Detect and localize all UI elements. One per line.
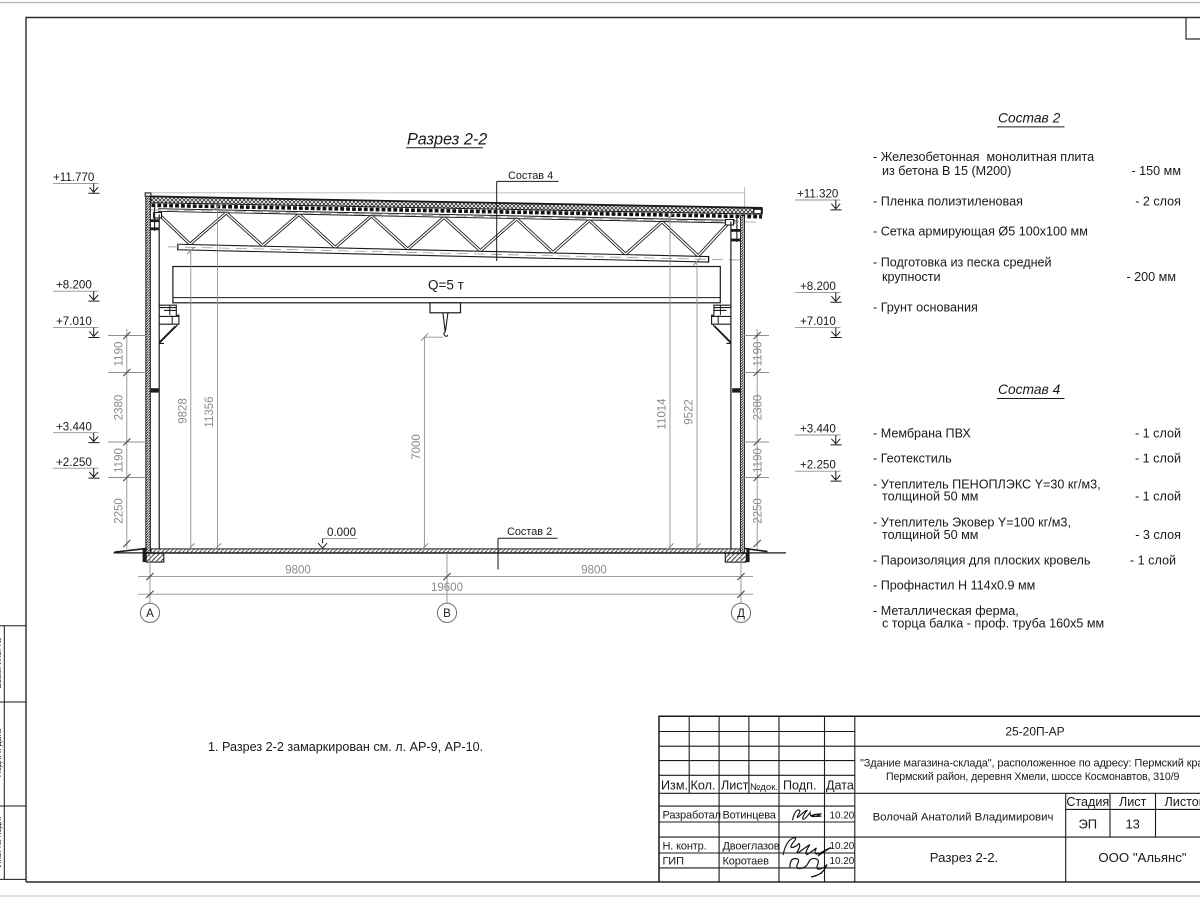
svg-text:Пермский район, деревня Хмели,: Пермский район, деревня Хмели, шоссе Кос… [886, 771, 1179, 783]
svg-text:с торца балка - проф. труба 16: с торца балка - проф. труба 160x5 мм [882, 617, 1104, 631]
svg-text:- 1 слой: - 1 слой [1135, 451, 1181, 465]
svg-text:1190: 1190 [753, 342, 765, 367]
svg-text:Стадия: Стадия [1066, 795, 1109, 809]
svg-text:Состав 4: Состав 4 [508, 170, 553, 182]
svg-text:толщиной 50 мм: толщиной 50 мм [882, 528, 978, 542]
svg-text:11014: 11014 [657, 398, 669, 430]
svg-text:Изм.: Изм. [661, 778, 688, 792]
svg-text:11356: 11356 [204, 396, 216, 427]
svg-text:- Геотекстиль: - Геотекстиль [873, 451, 952, 465]
svg-text:Волочай Анатолий Владимирович: Волочай Анатолий Владимирович [873, 812, 1054, 824]
svg-text:- 1 слой: - 1 слой [1135, 426, 1181, 440]
svg-text:13: 13 [1125, 817, 1139, 832]
svg-text:9800: 9800 [285, 565, 311, 577]
svg-text:+3.440: +3.440 [800, 423, 836, 436]
svg-text:- Грунт основания: - Грунт основания [873, 301, 978, 315]
svg-text:№док.: №док. [750, 782, 778, 793]
svg-text:10.20: 10.20 [830, 810, 855, 821]
svg-text:ООО "Альянс": ООО "Альянс" [1098, 850, 1186, 865]
svg-text:Лист: Лист [1119, 795, 1147, 809]
svg-text:+8.200: +8.200 [56, 278, 92, 291]
svg-text:9800: 9800 [581, 565, 607, 577]
svg-text:9828: 9828 [177, 398, 189, 424]
svg-text:Подп. и дата: Подп. и дата [0, 728, 3, 777]
svg-text:1. Разрез 2-2 замаркирован см.: 1. Разрез 2-2 замаркирован см. л. АР-9, … [208, 740, 483, 754]
svg-text:Вотинцева: Вотинцева [723, 810, 777, 822]
svg-text:- Железобетонная монолитная п: - Железобетонная монолитная плита [873, 150, 1094, 164]
svg-text:0.000: 0.000 [327, 526, 356, 539]
svg-text:А: А [146, 608, 154, 620]
svg-text:крупности: крупности [882, 270, 941, 284]
svg-text:- Профнастил Н 114x0.9 мм: - Профнастил Н 114x0.9 мм [873, 578, 1035, 592]
svg-text:Состав 4: Состав 4 [998, 382, 1061, 397]
svg-text:+8.200: +8.200 [800, 280, 836, 293]
svg-text:+3.440: +3.440 [56, 420, 92, 433]
svg-text:2380: 2380 [753, 395, 765, 421]
svg-text:Состав 2: Состав 2 [998, 111, 1061, 126]
svg-text:- Пароизоляция для плоских кро: - Пароизоляция для плоских кровель [873, 553, 1091, 567]
svg-text:В: В [443, 608, 451, 620]
svg-text:9522: 9522 [684, 399, 696, 425]
svg-text:Разрез 2-2.: Разрез 2-2. [930, 850, 998, 865]
svg-text:+11.770: +11.770 [53, 171, 94, 184]
svg-text:1190: 1190 [114, 342, 126, 367]
svg-text:- 3 слоя: - 3 слоя [1135, 528, 1181, 542]
svg-text:Лист: Лист [721, 778, 749, 792]
svg-text:Коротаев: Коротаев [723, 855, 770, 867]
svg-text:- Подготовка из песка средней: - Подготовка из песка средней [873, 256, 1052, 270]
svg-text:Д: Д [737, 608, 745, 620]
svg-text:толщиной 50 мм: толщиной 50 мм [882, 490, 978, 504]
svg-text:"Здание магазина-склада", расп: "Здание магазина-склада", расположенное … [860, 757, 1200, 769]
svg-text:25-20П-АР: 25-20П-АР [1005, 725, 1064, 739]
svg-text:1190: 1190 [753, 448, 765, 473]
svg-text:2250: 2250 [753, 498, 765, 524]
svg-text:10.20: 10.20 [830, 841, 855, 852]
svg-text:- Мембрана ПВХ: - Мембрана ПВХ [873, 426, 971, 440]
svg-text:+7.010: +7.010 [800, 315, 836, 328]
svg-text:ЭП: ЭП [1078, 817, 1097, 832]
svg-text:Разработал: Разработал [663, 810, 721, 822]
svg-text:из бетона В 15 (М200): из бетона В 15 (М200) [882, 164, 1011, 178]
svg-text:Кол.: Кол. [691, 778, 716, 792]
svg-text:Двоеглазов: Двоеглазов [723, 840, 780, 852]
svg-text:+11.320: +11.320 [797, 187, 838, 200]
svg-text:- 2 слоя: - 2 слоя [1135, 195, 1181, 209]
svg-text:Дата: Дата [826, 778, 854, 792]
svg-text:19600: 19600 [431, 582, 463, 594]
svg-text:+2.250: +2.250 [56, 456, 92, 469]
svg-text:+7.010: +7.010 [56, 315, 92, 328]
svg-text:2380: 2380 [114, 395, 126, 421]
svg-text:2250: 2250 [114, 498, 126, 524]
svg-text:- 200 мм: - 200 мм [1126, 270, 1176, 284]
svg-text:Подп.: Подп. [783, 778, 816, 792]
svg-text:Н. контр.: Н. контр. [663, 840, 707, 852]
svg-text:- Сетка армирующая Ø5 100x100: - Сетка армирующая Ø5 100x100 мм [873, 225, 1088, 239]
svg-text:7000: 7000 [411, 434, 423, 460]
svg-text:+2.250: +2.250 [800, 459, 836, 472]
svg-text:Разрез 2-2: Разрез 2-2 [407, 131, 487, 149]
svg-text:ГИП: ГИП [663, 855, 685, 867]
svg-text:- Пленка полиэтиленовая: - Пленка полиэтиленовая [873, 195, 1023, 209]
svg-text:- 150 мм: - 150 мм [1131, 164, 1181, 178]
svg-text:- 1 слой: - 1 слой [1130, 553, 1176, 567]
svg-text:Состав 2: Состав 2 [507, 526, 552, 538]
svg-text:Q=5 т: Q=5 т [428, 278, 464, 293]
svg-text:10.20: 10.20 [830, 856, 855, 867]
svg-text:Листов: Листов [1165, 795, 1200, 809]
svg-text:1190: 1190 [114, 448, 126, 473]
svg-text:- 1 слой: - 1 слой [1135, 490, 1181, 504]
svg-text:Взам. инв. №: Взам. инв. № [0, 637, 3, 688]
svg-text:Инв. № подл.: Инв. № подл. [0, 817, 3, 868]
